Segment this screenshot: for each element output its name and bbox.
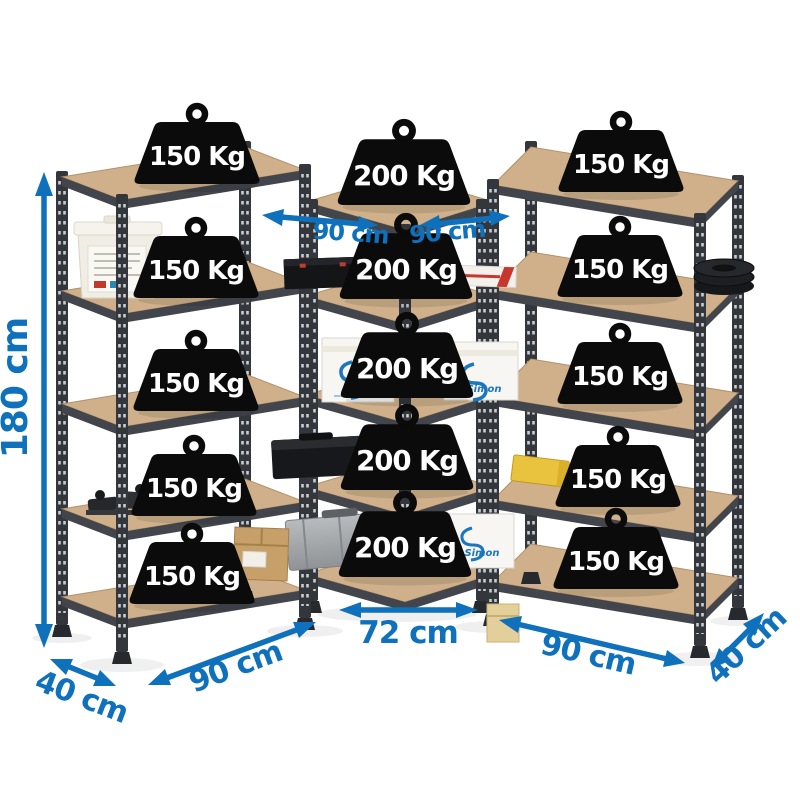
upright-post xyxy=(56,171,68,625)
weight-capacity-label: 150 Kg xyxy=(568,547,664,577)
weight-capacity-label: 150 Kg xyxy=(573,150,669,180)
dimension-height-arrow: 180 cm xyxy=(0,172,53,648)
weight-capacity-label: 150 Kg xyxy=(144,562,240,592)
dimension-center-span-label: 72 cm xyxy=(358,615,458,651)
dimension-center-span-arrow: 72 cm xyxy=(339,602,478,651)
corner-shelving-diagram: Simon Simon Simon xyxy=(0,0,800,800)
upright-post xyxy=(116,194,128,652)
dimension-bottom-right-width-arrow: 90 cm xyxy=(499,616,685,683)
weight-capacity-label: 200 Kg xyxy=(355,254,457,286)
weight-capacity-badge: 150 Kg xyxy=(558,219,683,305)
dimension-height-label: 180 cm xyxy=(0,318,36,459)
weight-capacity-label: 200 Kg xyxy=(356,353,458,385)
weight-capacity-badge: 150 Kg xyxy=(556,429,681,515)
weight-badges: 150 Kg 150 Kg 150 Kg 150 Kg 150 Kg 200 K… xyxy=(130,106,684,612)
weight-capacity-label: 200 Kg xyxy=(356,445,458,477)
weight-capacity-label: 200 Kg xyxy=(354,532,456,564)
weight-capacity-label: 150 Kg xyxy=(146,474,242,504)
weight-capacity-badge: 150 Kg xyxy=(558,326,683,412)
weight-capacity-label: 150 Kg xyxy=(148,256,244,286)
weight-capacity-label: 150 Kg xyxy=(572,255,668,285)
weight-capacity-badge: 200 Kg xyxy=(341,315,473,406)
weight-capacity-label: 150 Kg xyxy=(148,369,244,399)
box-brand-label: Simon xyxy=(464,548,499,559)
weight-capacity-badge: 200 Kg xyxy=(338,122,470,213)
weight-capacity-label: 150 Kg xyxy=(572,362,668,392)
weight-capacity-label: 200 Kg xyxy=(353,160,455,192)
dimension-bottom-right-width-label: 90 cm xyxy=(537,627,639,683)
weight-capacity-label: 150 Kg xyxy=(149,142,245,172)
weight-capacity-badge: 150 Kg xyxy=(559,114,684,200)
dimension-top-left-width-label: 90 cm xyxy=(312,216,390,249)
upright-post xyxy=(732,175,744,608)
dimension-bottom-left-width-arrow: 90 cm xyxy=(148,622,316,700)
dimension-top-right-width-label: 90 cm xyxy=(408,215,486,250)
weight-capacity-badge: 150 Kg xyxy=(135,106,260,192)
product-dimension-diagram: Simon Simon Simon xyxy=(0,0,800,800)
weight-capacity-badge: 200 Kg xyxy=(341,407,473,498)
cable-coil xyxy=(694,259,754,295)
dimension-bottom-left-width-label: 90 cm xyxy=(184,634,286,700)
weight-capacity-badge: 150 Kg xyxy=(132,438,257,524)
weight-capacity-label: 150 Kg xyxy=(570,465,666,495)
